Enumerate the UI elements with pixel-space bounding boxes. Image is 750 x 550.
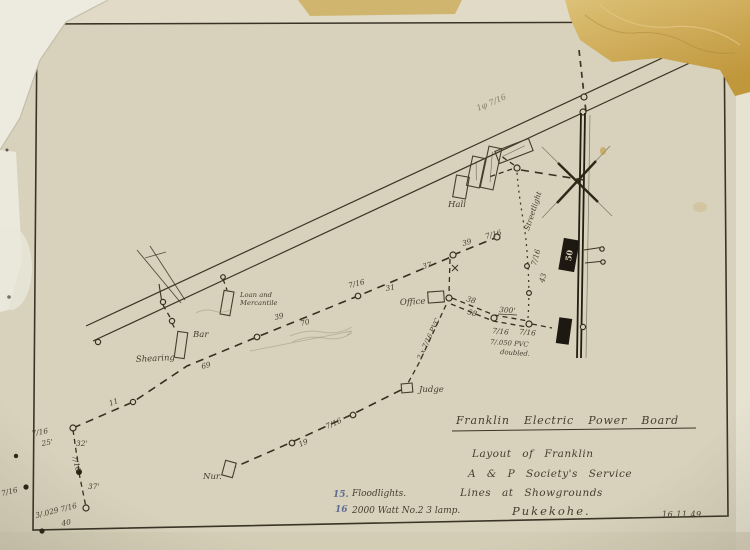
title-line3: A & P Society's Service — [467, 468, 632, 480]
office-label: Office — [400, 297, 426, 308]
stain-top-strip — [298, 0, 462, 16]
drawing-canvas: 50 — [0, 0, 750, 550]
loan-label-line1: Loan and — [239, 291, 273, 299]
shearing-label: Shearing — [136, 353, 176, 365]
pole — [221, 275, 226, 280]
title-line4: Lines at Showgrounds — [459, 487, 603, 499]
pole — [527, 291, 532, 296]
title-line2: Layout of Franklin — [471, 448, 594, 460]
pole — [491, 315, 497, 321]
pole — [446, 295, 452, 301]
note-lamp: 2000 Watt No.2 3 lamp. — [351, 506, 460, 516]
note-floodlights: Floodlights. — [351, 489, 406, 499]
measurement: 40 — [60, 517, 72, 528]
measurement: 7/16 — [492, 326, 510, 337]
transformer-rating-label: 50 — [563, 249, 575, 262]
insulator — [601, 260, 605, 264]
date-label: 16.11.49 — [662, 510, 702, 519]
measurement: 31 — [385, 282, 396, 292]
pole — [95, 339, 100, 344]
pole — [450, 252, 456, 258]
scanned-drawing: 50 — [0, 0, 750, 550]
pole — [350, 412, 356, 418]
stain-spot — [693, 202, 707, 212]
pole — [254, 334, 260, 340]
judge-label: Judge — [417, 385, 444, 395]
speck — [7, 295, 11, 299]
pole — [355, 293, 361, 299]
nursery-label: Nur. — [202, 472, 222, 482]
vignette — [0, 0, 750, 550]
paper-background — [0, 0, 750, 550]
note-number-16: 16 — [335, 505, 348, 515]
pole — [169, 318, 174, 323]
pole — [581, 94, 587, 100]
pole — [580, 324, 585, 329]
loan-label-line2: Mercantile — [239, 299, 278, 307]
speck — [6, 149, 9, 152]
pole — [526, 321, 532, 327]
measurement: 37' — [88, 482, 99, 491]
pole — [289, 440, 295, 446]
bar-label: Bar — [192, 330, 209, 340]
hall-label: Hall — [447, 200, 466, 210]
measurement: 32' — [76, 439, 87, 448]
punch-hole — [14, 454, 18, 458]
punch-hole — [39, 528, 44, 533]
insulator — [600, 247, 604, 251]
measurement: 300' — [499, 305, 516, 315]
measurement: 7/16 — [519, 327, 537, 338]
pole — [514, 165, 520, 171]
punch-hole — [23, 484, 28, 489]
stain-spot — [600, 147, 606, 155]
pole — [160, 299, 165, 304]
title-line1: Franklin Electric Power Board — [455, 414, 679, 427]
note-number-15: 15. — [333, 490, 349, 500]
title-line5: Pukekohe. — [511, 504, 591, 518]
pole — [83, 505, 89, 511]
pole — [130, 399, 135, 404]
